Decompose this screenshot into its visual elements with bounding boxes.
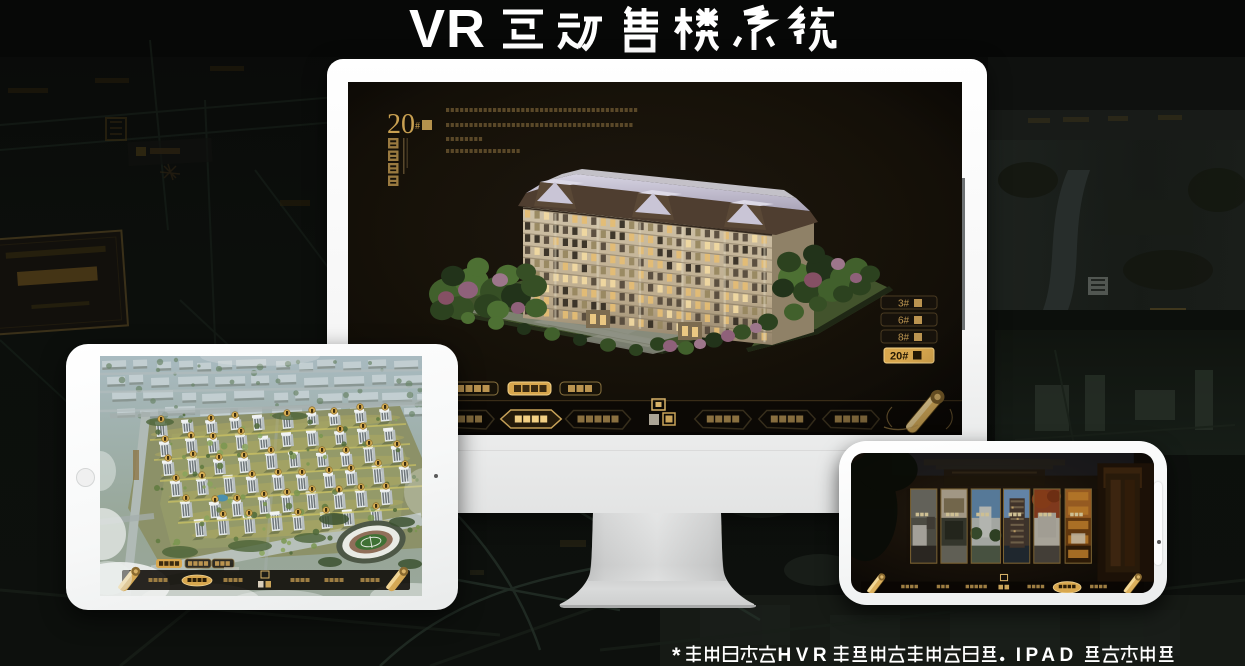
svg-text:*: *: [672, 643, 681, 666]
svg-text:IPAD: IPAD: [1016, 645, 1078, 666]
svg-text:HVR: HVR: [778, 645, 832, 666]
svg-text:VR: VR: [409, 2, 486, 54]
